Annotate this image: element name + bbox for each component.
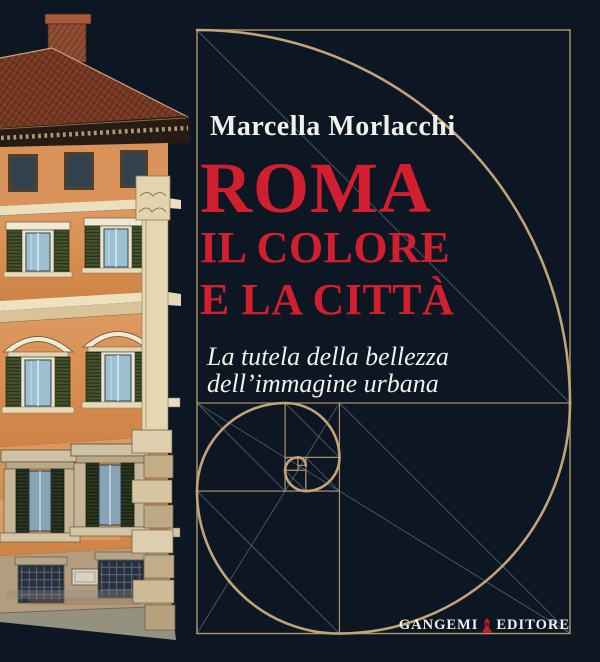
author-name: Marcella Morlacchi: [210, 111, 456, 143]
golden-spiral-diagram: [0, 0, 600, 662]
subtitle-line-1: La tutela della bellezza: [207, 343, 449, 370]
book-subtitle: La tutela della bellezza dell’immagine u…: [207, 343, 449, 398]
title-line-1: ROMA: [200, 152, 432, 224]
publisher-name-gangemi: GANGEMI: [399, 617, 479, 634]
obelisk-icon: [482, 618, 492, 633]
publisher-logo: GANGEMI EDITORE: [399, 617, 570, 634]
publisher-name-editore: EDITORE: [496, 617, 570, 634]
subtitle-line-2: dell’immagine urbana: [207, 370, 449, 397]
title-line-3: E LA CITTÀ: [200, 278, 454, 322]
title-line-2: IL COLORE: [200, 226, 450, 270]
book-cover: Marcella Morlacchi ROMA IL COLORE E LA C…: [0, 0, 600, 662]
